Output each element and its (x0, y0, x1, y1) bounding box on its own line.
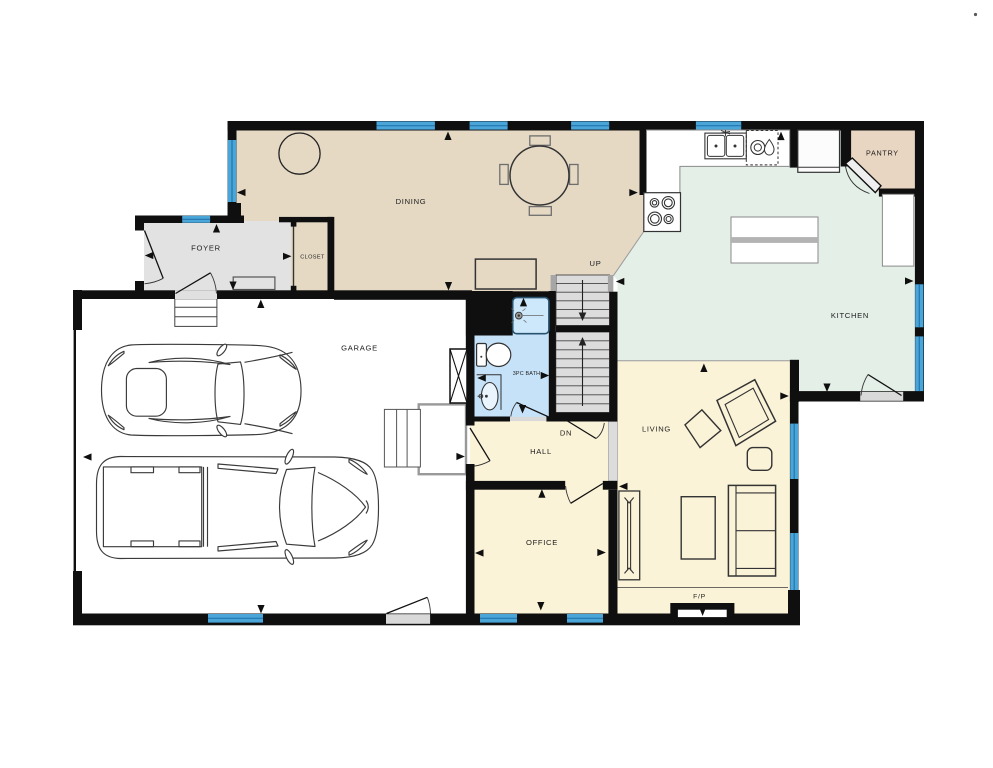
svg-text:PANTRY: PANTRY (866, 148, 899, 157)
svg-text:DN: DN (560, 428, 572, 437)
svg-text:UP: UP (590, 259, 602, 268)
svg-text:HALL: HALL (530, 447, 552, 456)
svg-text:FOYER: FOYER (191, 243, 221, 252)
svg-text:3PC BATH: 3PC BATH (513, 371, 541, 377)
svg-text:LIVING: LIVING (642, 425, 671, 434)
svg-text:KITCHEN: KITCHEN (831, 311, 869, 320)
svg-text:DINING: DINING (396, 197, 427, 206)
svg-text:GARAGE: GARAGE (341, 343, 378, 352)
svg-text:OFFICE: OFFICE (526, 538, 558, 547)
svg-text:F/P: F/P (693, 593, 706, 600)
svg-text:CLOSET: CLOSET (300, 255, 325, 261)
